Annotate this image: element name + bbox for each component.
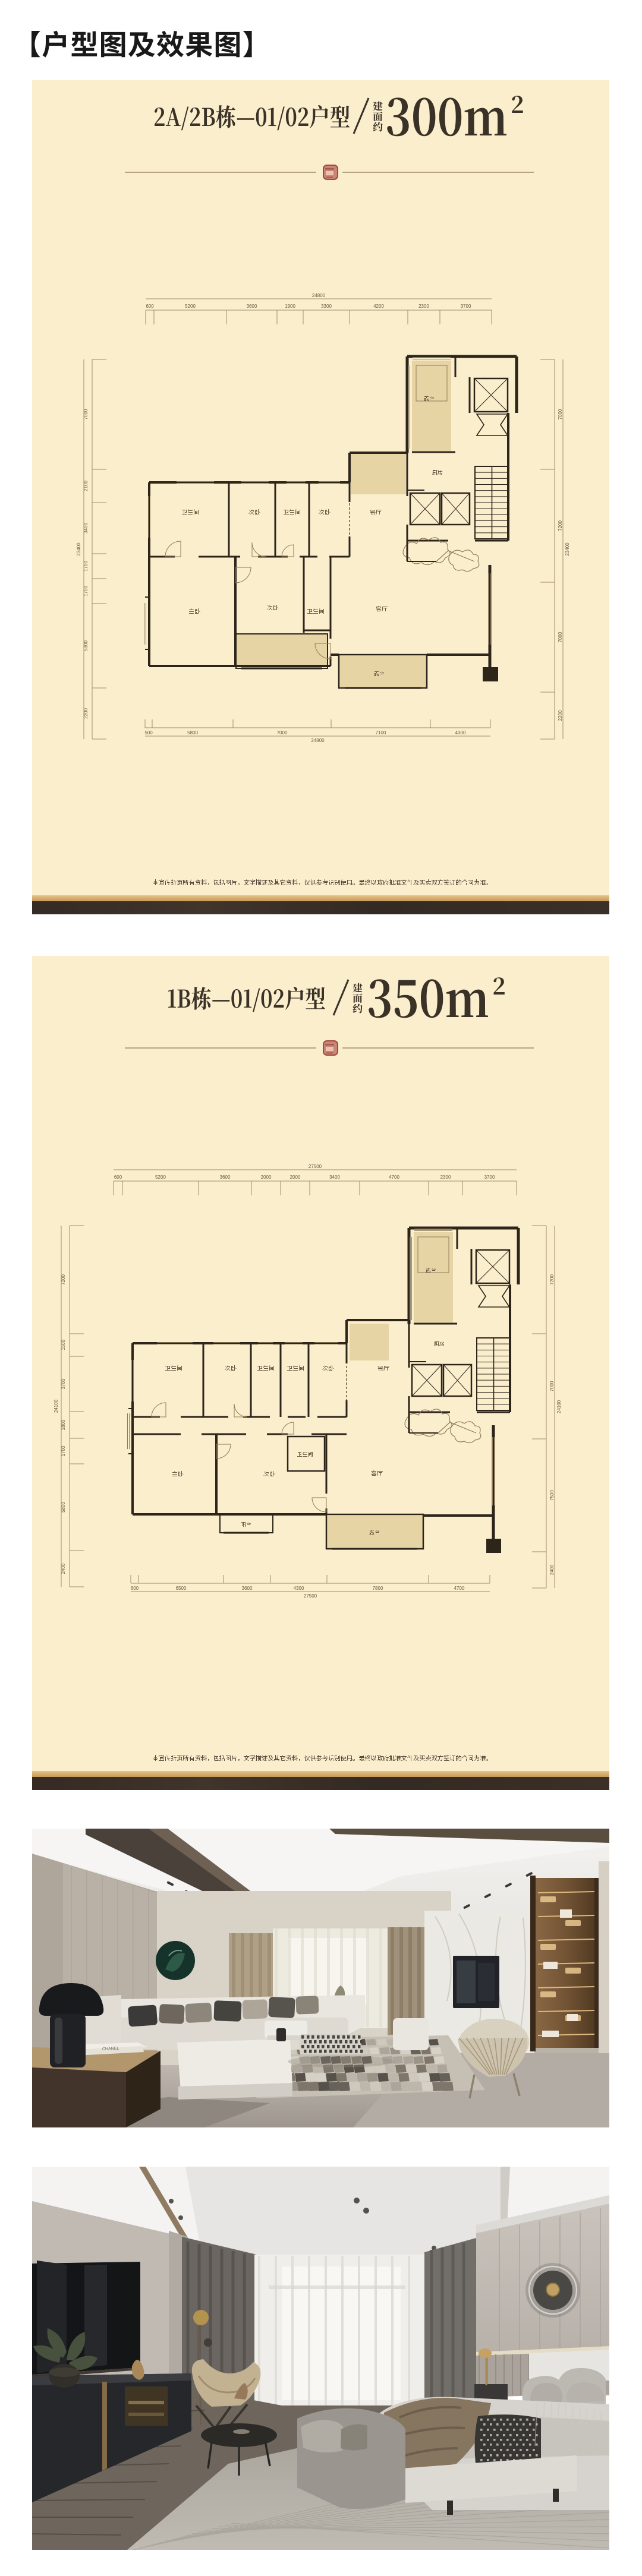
svg-text:3700: 3700: [461, 304, 471, 309]
svg-text:27500: 27500: [304, 1593, 317, 1599]
svg-text:2300: 2300: [418, 304, 429, 309]
svg-text:5200: 5200: [155, 1175, 166, 1180]
svg-text:3700: 3700: [484, 1175, 495, 1180]
svg-text:2000: 2000: [261, 1175, 272, 1180]
svg-text:5200: 5200: [185, 304, 196, 309]
svg-text:600: 600: [146, 304, 154, 309]
svg-text:24100: 24100: [556, 1400, 562, 1413]
svg-text:24100: 24100: [53, 1399, 59, 1413]
svg-text:7500: 7500: [549, 1490, 555, 1501]
svg-text:3600: 3600: [220, 1175, 231, 1180]
svg-text:7800: 7800: [373, 1586, 383, 1591]
svg-text:2400: 2400: [549, 1564, 555, 1575]
svg-text:7000: 7000: [277, 730, 288, 735]
svg-text:24800: 24800: [312, 293, 326, 298]
svg-text:27500: 27500: [309, 1164, 322, 1169]
svg-text:CHANEL: CHANEL: [102, 2047, 119, 2051]
svg-text:3400: 3400: [329, 1175, 340, 1180]
svg-text:3600: 3600: [242, 1586, 253, 1591]
svg-text:6500: 6500: [176, 1586, 187, 1591]
svg-text:2300: 2300: [440, 1175, 451, 1180]
svg-text:4300: 4300: [455, 730, 466, 735]
svg-text:4300: 4300: [294, 1586, 304, 1591]
svg-text:2200: 2200: [558, 710, 563, 721]
svg-text:4200: 4200: [373, 304, 384, 309]
svg-text:7100: 7100: [376, 730, 386, 735]
svg-text:1900: 1900: [285, 304, 295, 309]
svg-text:24800: 24800: [311, 738, 325, 743]
svg-text:23400: 23400: [76, 542, 81, 556]
svg-text:500: 500: [144, 730, 153, 735]
svg-text:2000: 2000: [290, 1175, 301, 1180]
svg-text:3600: 3600: [247, 304, 257, 309]
svg-text:23400: 23400: [565, 542, 570, 556]
svg-text:4700: 4700: [389, 1175, 399, 1180]
svg-text:600: 600: [114, 1175, 122, 1180]
svg-text:600: 600: [131, 1586, 139, 1591]
svg-text:7000: 7000: [549, 1381, 555, 1391]
svg-text:7200: 7200: [549, 1274, 555, 1285]
svg-text:4700: 4700: [454, 1586, 465, 1591]
svg-text:5800: 5800: [187, 730, 198, 735]
svg-text:7000: 7000: [558, 409, 563, 419]
svg-text:7000: 7000: [558, 632, 563, 642]
svg-text:3300: 3300: [321, 304, 332, 309]
svg-text:7200: 7200: [558, 520, 563, 531]
